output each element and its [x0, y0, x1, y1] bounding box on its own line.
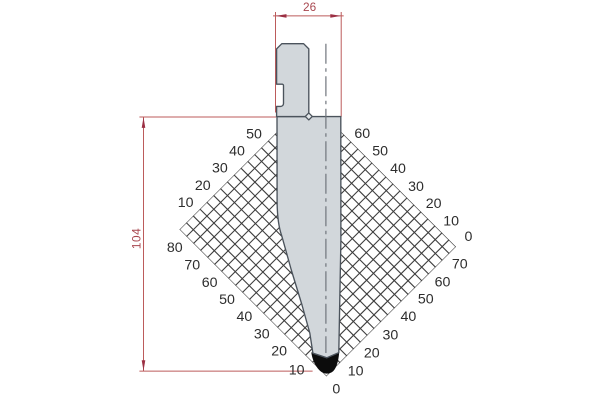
svg-text:0: 0 [332, 381, 340, 397]
svg-text:20: 20 [426, 196, 442, 212]
svg-text:10: 10 [443, 213, 459, 229]
svg-text:30: 30 [254, 326, 270, 342]
svg-text:60: 60 [435, 275, 451, 291]
svg-text:10: 10 [348, 363, 364, 379]
svg-text:50: 50 [246, 127, 262, 143]
svg-text:40: 40 [390, 161, 406, 177]
svg-text:20: 20 [364, 346, 380, 362]
svg-text:10: 10 [178, 195, 194, 211]
svg-text:80: 80 [167, 240, 183, 256]
svg-text:30: 30 [408, 179, 424, 195]
svg-text:70: 70 [452, 257, 468, 273]
svg-text:40: 40 [229, 144, 245, 160]
svg-text:20: 20 [195, 178, 211, 194]
svg-text:10: 10 [289, 362, 305, 378]
svg-text:50: 50 [418, 292, 434, 308]
svg-text:0: 0 [465, 229, 473, 245]
svg-text:30: 30 [212, 161, 228, 177]
svg-text:60: 60 [354, 126, 370, 142]
svg-text:60: 60 [202, 275, 218, 291]
svg-text:40: 40 [237, 309, 253, 325]
svg-text:20: 20 [271, 344, 287, 360]
svg-text:50: 50 [372, 144, 388, 160]
svg-text:26: 26 [303, 0, 317, 14]
svg-text:50: 50 [219, 292, 235, 308]
svg-text:30: 30 [383, 327, 399, 343]
svg-text:40: 40 [401, 309, 417, 325]
svg-text:70: 70 [184, 258, 200, 274]
svg-text:104: 104 [130, 228, 144, 249]
